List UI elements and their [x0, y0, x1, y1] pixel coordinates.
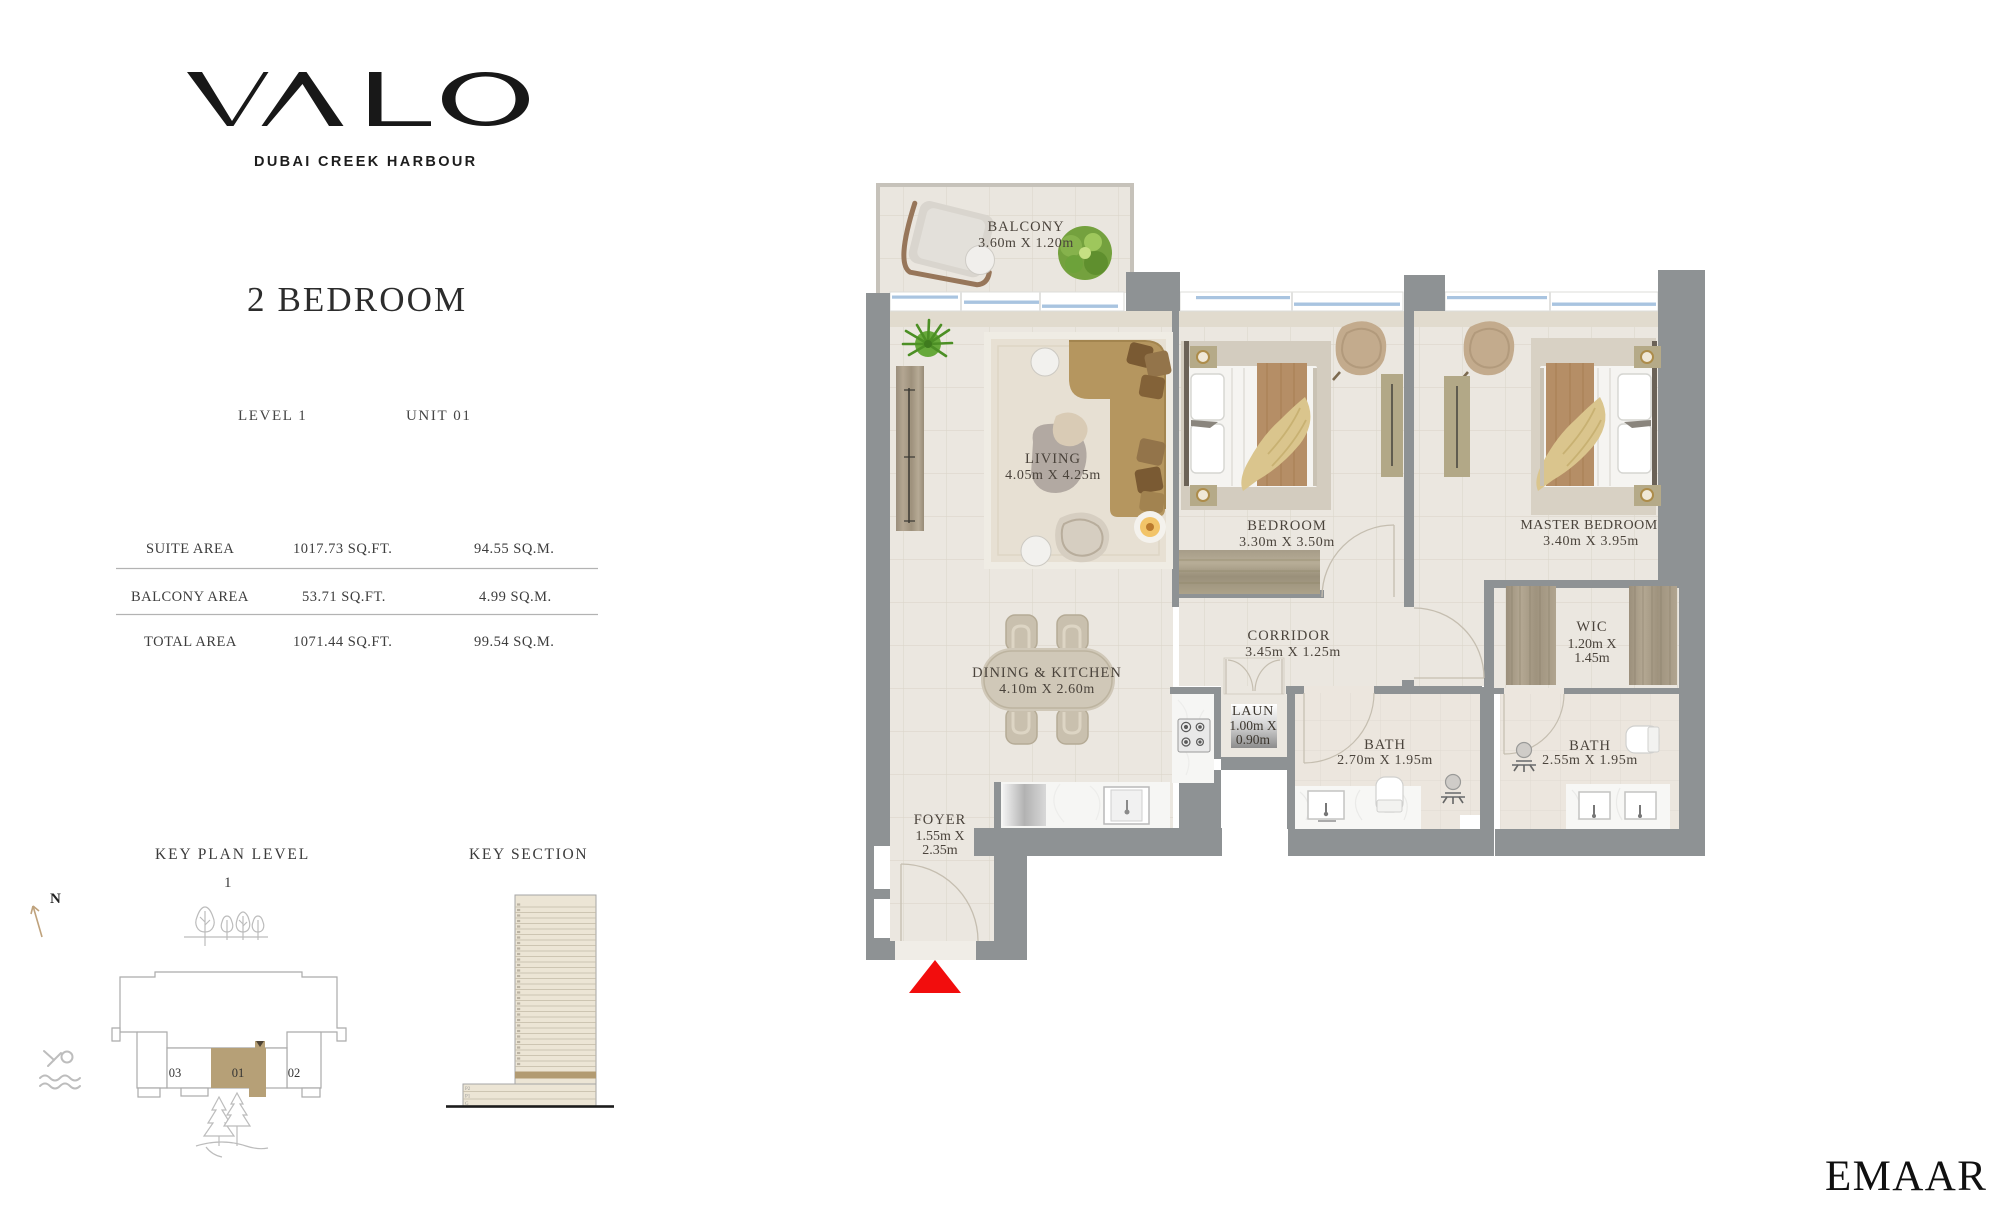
svg-text:DUBAI CREEK HARBOUR: DUBAI CREEK HARBOUR: [254, 154, 478, 170]
svg-text:1.55m X: 1.55m X: [916, 829, 965, 844]
svg-text:LEVEL 1: LEVEL 1: [238, 408, 307, 424]
svg-text:TOTAL AREA: TOTAL AREA: [144, 634, 237, 650]
svg-text:03: 03: [169, 1066, 182, 1080]
svg-text:94.55 SQ.M.: 94.55 SQ.M.: [474, 541, 554, 557]
svg-text:WIC: WIC: [1576, 619, 1607, 635]
svg-text:CORRIDOR: CORRIDOR: [1248, 628, 1331, 644]
svg-text:1.20m X: 1.20m X: [1568, 637, 1617, 652]
svg-text:LIVING: LIVING: [1025, 451, 1081, 467]
svg-text:P2: P2: [465, 1087, 471, 1092]
svg-text:99.54 SQ.M.: 99.54 SQ.M.: [474, 634, 554, 650]
svg-text:0.90m: 0.90m: [1236, 732, 1271, 747]
svg-text:53.71 SQ.FT.: 53.71 SQ.FT.: [302, 589, 386, 605]
svg-text:KEY SECTION: KEY SECTION: [469, 846, 588, 863]
svg-text:3.60m X 1.20m: 3.60m X 1.20m: [978, 236, 1074, 251]
svg-text:1.00m X: 1.00m X: [1229, 718, 1277, 733]
svg-text:1.45m: 1.45m: [1574, 651, 1610, 666]
svg-text:02: 02: [288, 1066, 301, 1080]
svg-text:01: 01: [232, 1066, 245, 1080]
svg-text:DINING & KITCHEN: DINING & KITCHEN: [972, 665, 1122, 681]
svg-text:BEDROOM: BEDROOM: [1247, 518, 1327, 534]
svg-text:BALCONY: BALCONY: [987, 219, 1064, 235]
svg-text:1071.44 SQ.FT.: 1071.44 SQ.FT.: [293, 634, 392, 650]
svg-text:P1: P1: [465, 1095, 471, 1100]
svg-text:BATH: BATH: [1569, 738, 1611, 754]
svg-text:UNIT 01: UNIT 01: [406, 408, 472, 424]
svg-text:1017.73 SQ.FT.: 1017.73 SQ.FT.: [293, 541, 392, 557]
svg-text:LAUN: LAUN: [1232, 704, 1274, 719]
svg-text:2.35m: 2.35m: [922, 843, 958, 858]
svg-text:2 BEDROOM: 2 BEDROOM: [247, 280, 467, 319]
svg-text:3.40m X 3.95m: 3.40m X 3.95m: [1543, 534, 1639, 549]
svg-text:2.70m X 1.95m: 2.70m X 1.95m: [1337, 753, 1433, 768]
svg-text:4.99 SQ.M.: 4.99 SQ.M.: [479, 589, 552, 605]
svg-text:FOYER: FOYER: [914, 812, 967, 828]
svg-text:3.45m X 1.25m: 3.45m X 1.25m: [1245, 645, 1341, 660]
svg-text:1: 1: [224, 875, 232, 891]
svg-text:KEY PLAN LEVEL: KEY PLAN LEVEL: [155, 846, 310, 863]
svg-text:4.10m X 2.60m: 4.10m X 2.60m: [999, 682, 1095, 697]
svg-text:N: N: [50, 891, 61, 907]
svg-text:2.55m X 1.95m: 2.55m X 1.95m: [1542, 753, 1638, 768]
svg-text:4.05m X 4.25m: 4.05m X 4.25m: [1005, 468, 1101, 483]
svg-text:BALCONY AREA: BALCONY AREA: [131, 589, 249, 605]
svg-text:BATH: BATH: [1364, 737, 1406, 753]
svg-text:EMAAR: EMAAR: [1825, 1153, 1987, 1200]
svg-text:MASTER BEDROOM: MASTER BEDROOM: [1520, 518, 1657, 533]
svg-text:SUITE AREA: SUITE AREA: [146, 541, 234, 557]
svg-text:3.30m X 3.50m: 3.30m X 3.50m: [1239, 535, 1335, 550]
